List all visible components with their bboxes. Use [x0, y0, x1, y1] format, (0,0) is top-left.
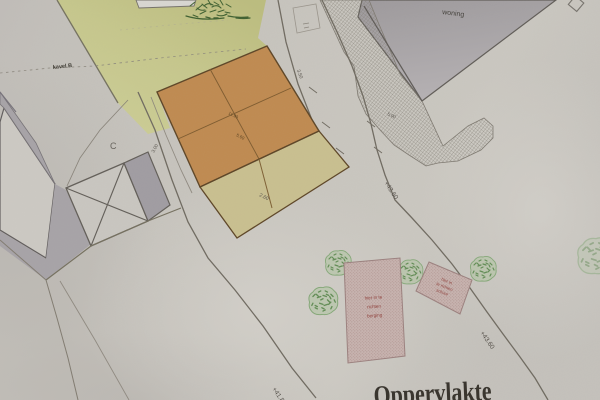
svg-text:Oppervlakte: Oppervlakte — [373, 376, 492, 400]
